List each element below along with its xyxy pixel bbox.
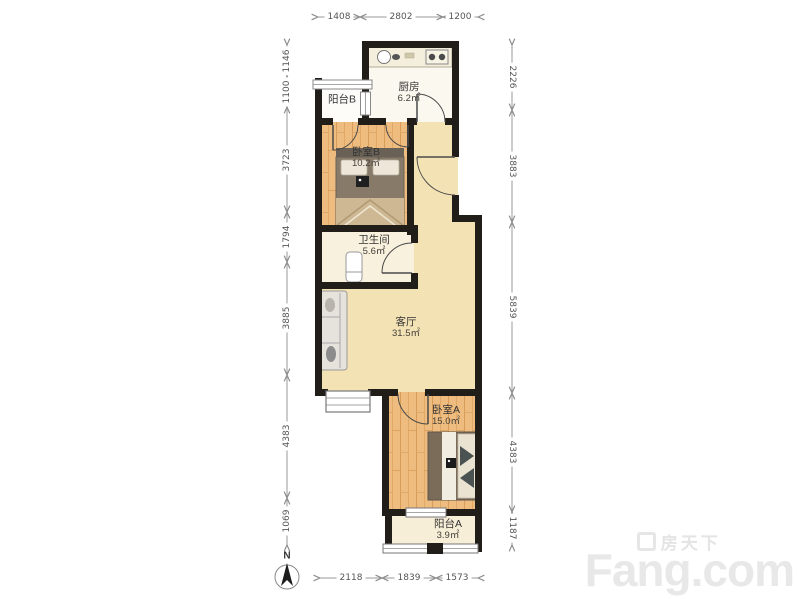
- dim-top-2: 2802: [387, 12, 416, 22]
- dim-top-1: 1408: [325, 12, 354, 22]
- dim-left-4: 1794: [282, 223, 292, 252]
- floorplan-page: 1408 2802 1200 2118 1839 1573 1146 1100 …: [0, 0, 800, 600]
- dim-left-5: 3885: [282, 304, 292, 333]
- balcony-a-slider: [406, 508, 446, 517]
- pillow: [458, 434, 476, 498]
- faucet-icon: [392, 54, 400, 60]
- sink-icon: [378, 51, 391, 64]
- kitchen-counter: [368, 47, 452, 67]
- dim-left-2: 1100: [282, 78, 292, 107]
- dim-right-1: 2226: [507, 63, 517, 92]
- pillow: [341, 160, 367, 175]
- dim-right-5: 1187: [507, 514, 517, 543]
- tv-icon: [356, 176, 369, 187]
- dim-right-2: 3883: [507, 152, 517, 181]
- bathroom-floor: [318, 228, 414, 285]
- toilet-icon: [346, 252, 362, 282]
- living-bay-window: [326, 391, 370, 412]
- sofa: [320, 291, 347, 370]
- dim-top-3: 1200: [446, 12, 475, 22]
- balcony-a-window: [383, 543, 478, 554]
- compass: [275, 563, 299, 589]
- dim-left-6: 4383: [282, 422, 292, 451]
- tv-icon: [446, 458, 456, 468]
- dim-right-4: 4383: [507, 438, 517, 467]
- pillow: [373, 160, 399, 175]
- bed-a: [428, 432, 476, 500]
- dim-right-3: 5839: [507, 293, 517, 322]
- dim-left-7: 1069: [282, 507, 292, 536]
- dim-left-1: 1146: [282, 47, 292, 76]
- north-label: N: [283, 551, 290, 562]
- watermark-en: Fang.com: [585, 548, 794, 592]
- watermark: 房天下 Fang.com: [585, 529, 794, 592]
- dim-bottom-2: 1839: [395, 573, 424, 583]
- balcony-b-window: [313, 80, 372, 89]
- floorplan-drawing: [0, 0, 800, 600]
- dim-bottom-3: 1573: [443, 573, 472, 583]
- dim-left-3: 3723: [282, 146, 292, 175]
- bed-b: [336, 148, 404, 226]
- dim-bottom-1: 2118: [337, 573, 366, 583]
- kitchen-side-window: [361, 92, 371, 115]
